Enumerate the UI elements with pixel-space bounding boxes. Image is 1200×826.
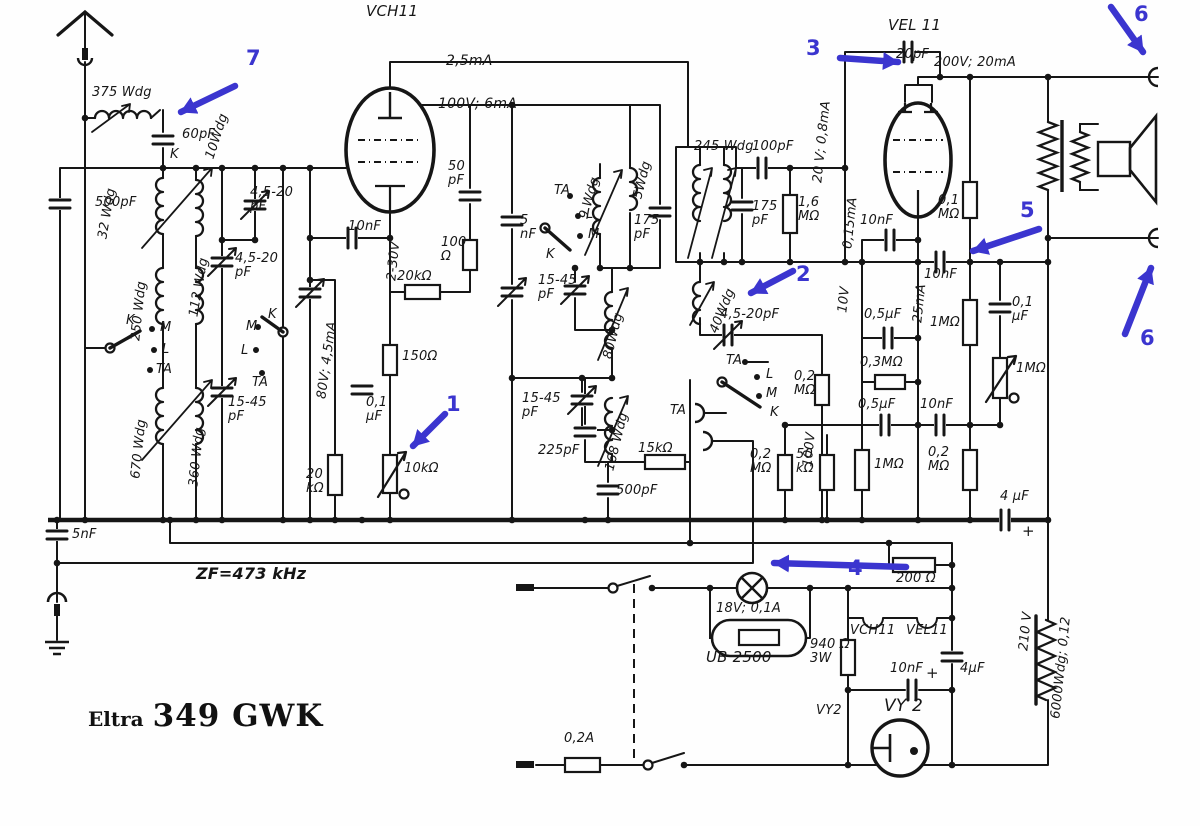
junction-dot — [949, 585, 956, 592]
resistor-icon — [963, 450, 977, 490]
junction-dot — [54, 560, 61, 567]
junction-dot — [842, 165, 849, 172]
annotation-arrows — [181, 7, 1151, 567]
selector-dot — [575, 213, 581, 219]
resistor-icon — [841, 640, 855, 675]
junction-dot — [782, 517, 789, 524]
selector-dot — [567, 193, 573, 199]
junction-dot — [824, 517, 831, 524]
annotation-arrow-2 — [751, 271, 793, 293]
junction-dot — [915, 379, 922, 386]
annotation-number-4: 4 — [848, 556, 863, 580]
resistor-icon — [963, 182, 977, 218]
junction-dot — [915, 335, 922, 342]
junction-dot — [842, 259, 849, 266]
model-number: 349 GWK — [153, 698, 324, 734]
junction-dot — [687, 540, 694, 547]
annotation-number-7: 7 — [246, 46, 261, 70]
junction-dot — [845, 687, 852, 694]
junction-dot — [193, 165, 200, 172]
junction-dot — [509, 102, 516, 109]
junction-dot — [1045, 259, 1052, 266]
resistor-icon — [328, 455, 342, 495]
annotation-arrow-6-bottom — [1125, 268, 1151, 334]
annotation-number-6-top: 6 — [1134, 2, 1149, 26]
resistor-icon — [463, 240, 477, 270]
tube-vy2 — [872, 720, 928, 776]
annotation-arrow-5 — [973, 229, 1039, 251]
schematic-part — [95, 111, 151, 118]
schematic-part — [1039, 122, 1057, 190]
schematic-title: Eltra 349 GWK — [88, 698, 323, 734]
resistor-icon — [383, 345, 397, 375]
junction-dot — [54, 517, 61, 524]
junction-dot — [915, 517, 922, 524]
junction-dot — [859, 259, 866, 266]
junction-dot — [509, 375, 516, 382]
junction-dot — [307, 235, 314, 242]
junction-dot — [219, 517, 226, 524]
junction-dot — [937, 74, 944, 81]
junction-dot — [167, 517, 174, 524]
junction-dot — [1045, 235, 1052, 242]
resistor-icon — [855, 450, 869, 490]
schematic-part — [110, 331, 140, 348]
selector-dot — [149, 326, 155, 332]
junction-dot — [582, 517, 589, 524]
mains-pins — [516, 584, 534, 768]
schematic-canvas: 375 Wdg60pF10WdgK500pF32 Wdg4,5-20 pF112… — [0, 0, 1200, 826]
junction-dot — [82, 115, 89, 122]
switch-pivot-icon — [609, 584, 618, 593]
schematic-part — [722, 382, 760, 407]
schematic-part — [1037, 620, 1055, 700]
schematic-part — [585, 170, 622, 255]
switch-pivot-icon — [400, 490, 409, 499]
junction-dot — [967, 517, 974, 524]
junction-dot — [597, 265, 604, 272]
ballast-ub2500 — [712, 620, 806, 656]
junction-dot — [627, 265, 634, 272]
antenna-pin — [82, 48, 88, 60]
switch-pivot-icon — [644, 761, 653, 770]
junction-dot — [967, 74, 974, 81]
resistor-icon — [875, 375, 905, 389]
junction-dot — [609, 327, 616, 334]
schematic-part — [142, 168, 212, 248]
junction-dot — [915, 237, 922, 244]
resistor-icon — [778, 455, 792, 490]
junction-dot — [387, 235, 394, 242]
junction-dot — [915, 259, 922, 266]
selector-dot — [754, 374, 760, 380]
junction-dot — [782, 422, 789, 429]
junction-dot — [681, 762, 688, 769]
junction-dot — [787, 259, 794, 266]
junction-dot — [949, 562, 956, 569]
junction-dot — [609, 427, 616, 434]
annotation-number-1: 1 — [446, 392, 461, 416]
selector-dot — [742, 359, 748, 365]
schematic-part — [196, 180, 203, 236]
schematic-part — [1072, 132, 1088, 182]
annotation-arrow-1 — [413, 414, 445, 446]
selector-dot — [577, 233, 583, 239]
junction-dot — [845, 762, 852, 769]
junction-dot — [332, 517, 339, 524]
schematic-part — [156, 268, 163, 324]
resistor-icon — [645, 455, 685, 469]
junction-dot — [845, 585, 852, 592]
junction-dot — [949, 762, 956, 769]
selector-dot — [756, 393, 762, 399]
selector-dot — [147, 367, 153, 373]
annotation-arrow-3 — [840, 58, 898, 62]
junction-dot — [160, 165, 167, 172]
junction-dot — [787, 165, 794, 172]
schematic-part — [92, 104, 130, 132]
selector-dot — [255, 324, 261, 330]
brand-name: Eltra — [88, 707, 144, 731]
junction-dot — [579, 375, 586, 382]
annotation-arrow-7 — [181, 86, 235, 112]
junction-dot — [307, 165, 314, 172]
junction-dot — [82, 517, 89, 524]
junction-dot — [509, 517, 516, 524]
resistor-icon — [963, 300, 977, 345]
junction-dot — [997, 422, 1004, 429]
junction-dot — [359, 517, 366, 524]
tube-vch11 — [346, 88, 434, 212]
junction-dot — [1045, 74, 1052, 81]
selector-dot — [151, 347, 157, 353]
schematic-part — [693, 165, 700, 221]
annotation-number-5: 5 — [1020, 198, 1035, 222]
junction-dot — [1045, 517, 1052, 524]
schematic-part — [630, 168, 637, 210]
annotation-number-2: 2 — [796, 262, 811, 286]
selector-dot — [253, 347, 259, 353]
tube-vel11 — [885, 103, 951, 217]
junction-dot — [307, 277, 314, 284]
resistor-icon — [405, 285, 440, 299]
junction-dot — [609, 375, 616, 382]
junction-dot — [193, 517, 200, 524]
speaker-icon — [1062, 116, 1156, 202]
junction-dot — [807, 585, 814, 592]
resistor-icon — [820, 455, 834, 490]
junction-dot — [307, 517, 314, 524]
junction-dot — [886, 540, 893, 547]
junction-dot — [219, 237, 226, 244]
schematic-part — [593, 178, 600, 234]
junction-dot — [160, 517, 167, 524]
resistor-icon — [783, 195, 797, 233]
junction-dot — [967, 259, 974, 266]
junction-dot — [721, 259, 728, 266]
junction-dot — [697, 259, 704, 266]
schematic-part — [196, 268, 203, 324]
junction-dot — [605, 517, 612, 524]
schematic-part — [688, 168, 712, 258]
junction-dot — [252, 237, 259, 244]
dial-lamp-icon — [737, 573, 767, 603]
schematic-part — [545, 228, 570, 250]
junction-dot — [649, 585, 656, 592]
schematic-part — [156, 388, 163, 444]
selector-dot — [259, 370, 265, 376]
junction-dot — [739, 259, 746, 266]
junction-dot — [280, 165, 287, 172]
annotation-arrow-4 — [774, 563, 906, 567]
annotation-number-6-bottom: 6 — [1140, 326, 1155, 350]
resistor-icon — [815, 375, 829, 405]
junction-dot — [387, 517, 394, 524]
junction-dot — [219, 165, 226, 172]
junction-dot — [859, 517, 866, 524]
junction-dot — [967, 422, 974, 429]
junction-dot — [707, 585, 714, 592]
junction-dot — [252, 165, 259, 172]
schematic-part — [262, 317, 283, 332]
junction-dot — [949, 615, 956, 622]
junction-dot — [915, 422, 922, 429]
switch-pivot-icon — [1010, 394, 1019, 403]
annotation-number-3: 3 — [806, 36, 821, 60]
resistor-icon — [993, 358, 1007, 398]
junction-dot — [572, 265, 579, 272]
schematic-part — [712, 168, 736, 258]
junction-dot — [949, 687, 956, 694]
junction-dot — [280, 517, 287, 524]
junction-dot — [997, 259, 1004, 266]
fuse-icon — [565, 758, 600, 772]
